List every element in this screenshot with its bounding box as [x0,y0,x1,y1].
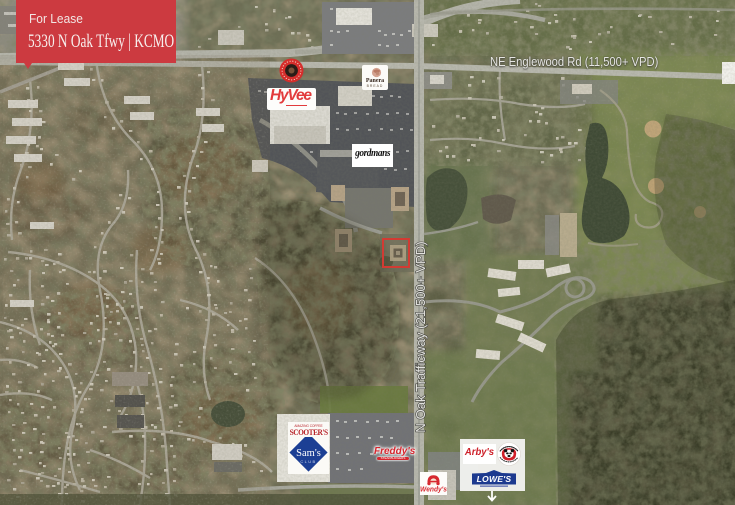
svg-text:Wendy's: Wendy's [420,486,447,493]
svg-text:CLUB: CLUB [300,459,316,464]
svg-text:Sam's: Sam's [296,448,321,459]
svg-text:LOWE'S: LOWE'S [477,474,512,484]
svg-text:N Oak Trafficway (21,500+ VPD): N Oak Trafficway (21,500+ VPD) [413,241,428,432]
svg-text:BREAD: BREAD [367,84,384,88]
